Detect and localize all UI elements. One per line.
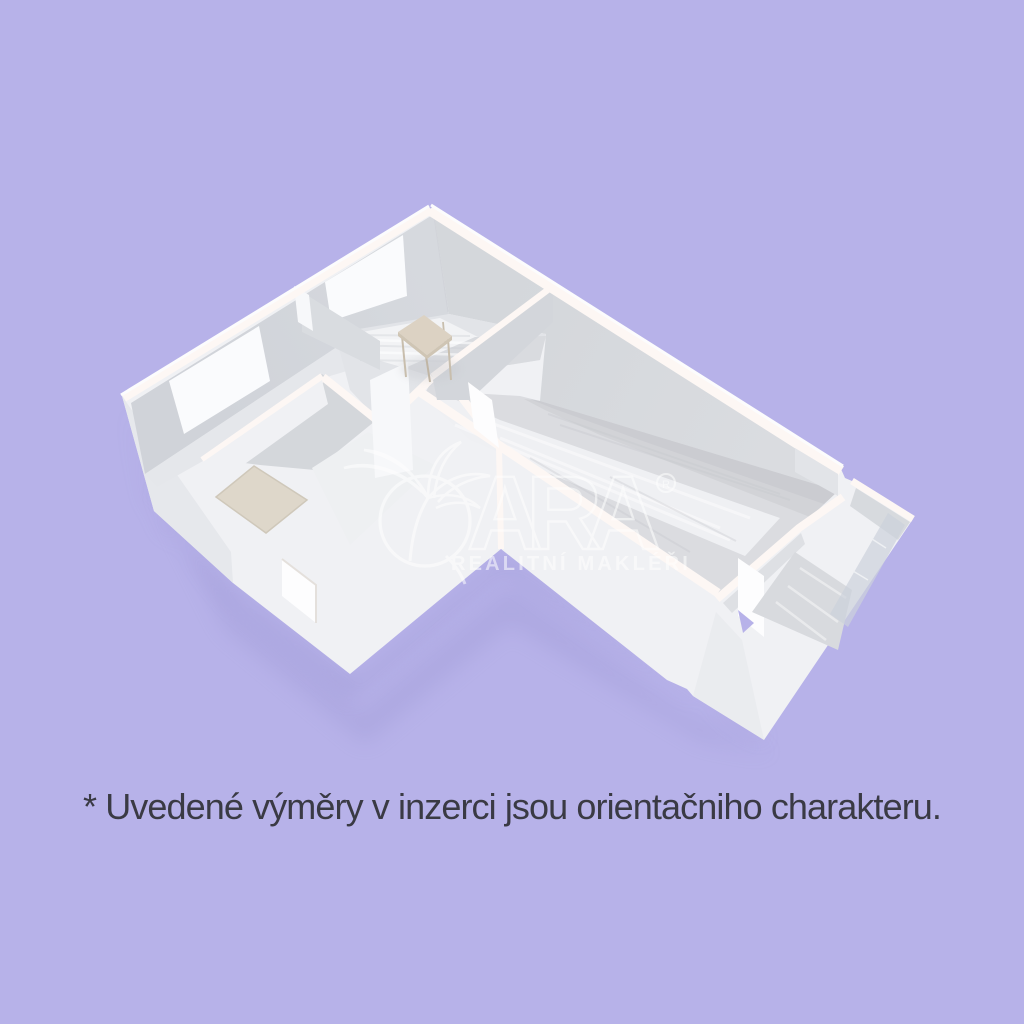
svg-text:REALITNÍ MAKLÉŘI: REALITNÍ MAKLÉŘI — [451, 551, 691, 575]
svg-text:R: R — [662, 479, 670, 491]
